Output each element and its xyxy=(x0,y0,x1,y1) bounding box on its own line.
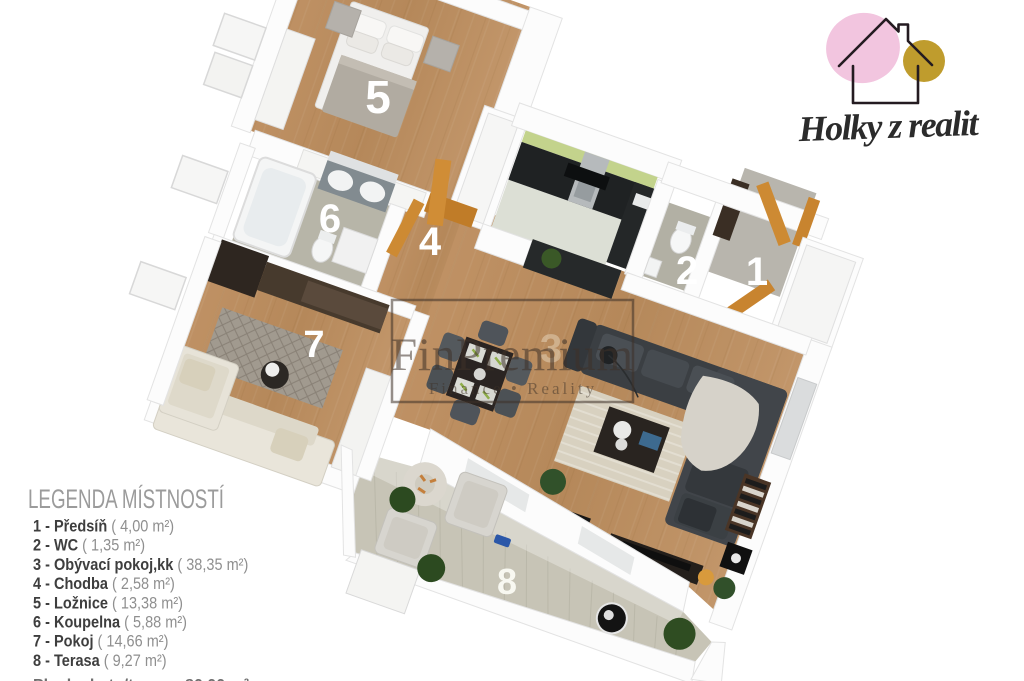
svg-text:4 - Chodba ( 2,58 m²): 4 - Chodba ( 2,58 m²) xyxy=(33,575,175,593)
svg-text:2: 2 xyxy=(676,249,698,293)
svg-text:7 - Pokoj ( 14,66 m²): 7 - Pokoj ( 14,66 m²) xyxy=(33,633,168,651)
svg-text:2 - WC ( 1,35 m²): 2 - WC ( 1,35 m²) xyxy=(33,537,145,555)
svg-text:8: 8 xyxy=(497,561,517,602)
svg-text:3 - Obývací pokoj,kk ( 38,35 m: 3 - Obývací pokoj,kk ( 38,35 m²) xyxy=(33,556,248,574)
svg-text:1: 1 xyxy=(746,250,768,294)
svg-text:5 - Ložnice ( 13,38 m²): 5 - Ložnice ( 13,38 m²) xyxy=(33,594,183,612)
svg-text:4: 4 xyxy=(419,220,442,264)
svg-text:Plocha bytu/terasy: 80,00 m²: Plocha bytu/terasy: 80,00 m² xyxy=(33,677,249,681)
svg-text:8 - Terasa ( 9,27 m²): 8 - Terasa ( 9,27 m²) xyxy=(33,652,167,670)
svg-text:5: 5 xyxy=(365,71,391,123)
svg-text:6: 6 xyxy=(319,197,341,241)
svg-text:6 - Koupelna ( 5,88 m²): 6 - Koupelna ( 5,88 m²) xyxy=(33,614,187,632)
svg-text:1 - Předsíň ( 4,00 m²): 1 - Předsíň ( 4,00 m²) xyxy=(33,518,174,536)
svg-text:FinPremium: FinPremium xyxy=(391,329,633,381)
svg-text:Holky z realit: Holky z realit xyxy=(797,103,980,149)
svg-text:Finance • Reality: Finance • Reality xyxy=(429,379,597,398)
svg-text:7: 7 xyxy=(303,324,324,366)
svg-text:LEGENDA MÍSTNOSTÍ: LEGENDA MÍSTNOSTÍ xyxy=(28,484,224,514)
